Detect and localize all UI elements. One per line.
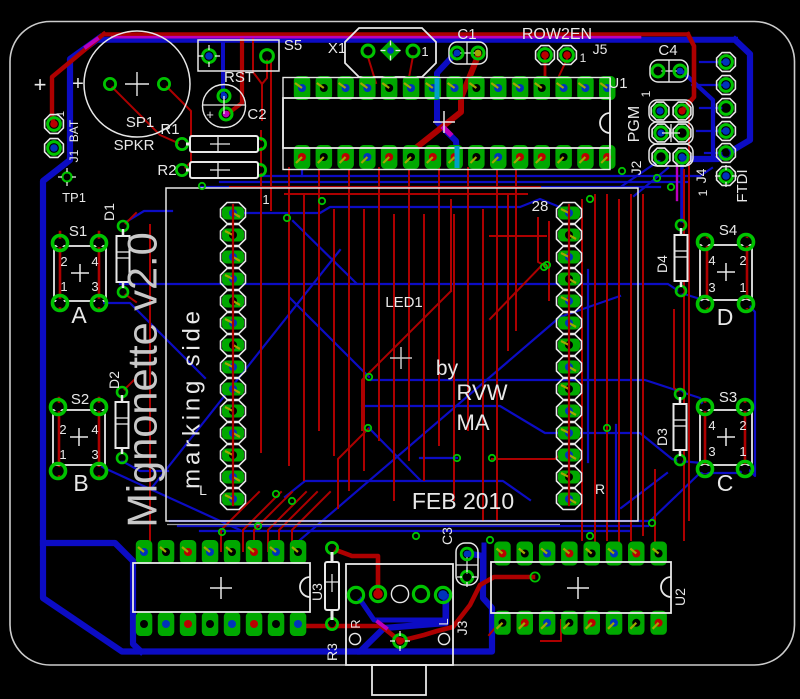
- svg-text:S2: S2: [71, 391, 89, 408]
- svg-text:BAT: BAT: [67, 119, 81, 142]
- svg-text:J1: J1: [67, 149, 81, 162]
- svg-text:C1: C1: [457, 26, 476, 43]
- svg-text:4: 4: [91, 422, 98, 437]
- svg-text:Mignonette v2.0: Mignonette v2.0: [119, 232, 166, 527]
- svg-text:U3: U3: [309, 583, 325, 601]
- svg-text:R2: R2: [157, 162, 176, 179]
- svg-text:2: 2: [59, 422, 66, 437]
- svg-text:U2: U2: [672, 588, 688, 606]
- svg-text:R: R: [348, 619, 363, 628]
- svg-text:1: 1: [739, 444, 746, 459]
- svg-text:FEB 2010: FEB 2010: [412, 488, 514, 514]
- svg-text:R1: R1: [160, 121, 179, 138]
- svg-text:C2: C2: [247, 106, 266, 123]
- svg-text:3: 3: [91, 279, 98, 294]
- svg-text:+: +: [34, 72, 47, 97]
- svg-text:by: by: [436, 357, 459, 380]
- svg-text:+: +: [206, 107, 214, 122]
- svg-text:J4: J4: [693, 168, 709, 183]
- svg-text:R: R: [595, 481, 605, 497]
- svg-text:SP1: SP1: [126, 114, 154, 131]
- svg-text:TP1: TP1: [62, 190, 86, 205]
- svg-text:D3: D3: [654, 428, 670, 446]
- svg-text:L: L: [436, 618, 451, 625]
- svg-text:D: D: [717, 304, 734, 330]
- svg-text:D4: D4: [654, 255, 670, 273]
- svg-text:1: 1: [262, 192, 269, 207]
- svg-text:4: 4: [91, 254, 98, 269]
- svg-text:1: 1: [696, 189, 710, 196]
- svg-text:2: 2: [739, 253, 746, 268]
- svg-text:C4: C4: [658, 42, 677, 59]
- svg-text:J5: J5: [593, 41, 608, 57]
- svg-text:SPKR: SPKR: [114, 137, 155, 154]
- svg-text:X1: X1: [328, 40, 346, 57]
- svg-text:S4: S4: [719, 222, 737, 239]
- svg-text:1: 1: [55, 111, 67, 117]
- svg-text:S1: S1: [69, 223, 87, 240]
- svg-text:J2: J2: [628, 160, 644, 175]
- svg-text:1: 1: [739, 280, 746, 295]
- svg-text:2: 2: [739, 418, 746, 433]
- svg-text:D1: D1: [101, 203, 117, 221]
- svg-text:1: 1: [59, 447, 66, 462]
- svg-text:ROW2EN: ROW2EN: [522, 26, 592, 43]
- svg-text:J3: J3: [454, 620, 470, 635]
- svg-text:4: 4: [708, 418, 715, 433]
- svg-text:FTDI: FTDI: [734, 169, 751, 202]
- svg-text:+: +: [72, 73, 84, 95]
- svg-text:C: C: [717, 470, 734, 496]
- svg-text:U1: U1: [608, 75, 627, 92]
- svg-text:2: 2: [60, 254, 67, 269]
- svg-text:A: A: [71, 302, 87, 328]
- svg-text:LED1: LED1: [385, 294, 423, 311]
- svg-text:1: 1: [580, 51, 587, 65]
- svg-text:C3: C3: [439, 527, 455, 545]
- svg-text:B: B: [73, 470, 88, 496]
- svg-text:28: 28: [532, 198, 549, 215]
- svg-text:RVW: RVW: [457, 380, 508, 405]
- svg-text:S3: S3: [719, 389, 737, 406]
- svg-text:3: 3: [708, 280, 715, 295]
- svg-text:S5: S5: [284, 37, 302, 54]
- svg-text:1: 1: [639, 90, 653, 97]
- svg-text:4: 4: [708, 253, 715, 268]
- svg-text:R3: R3: [324, 643, 340, 661]
- svg-text:1: 1: [60, 279, 67, 294]
- svg-text:3: 3: [708, 444, 715, 459]
- svg-text:MA: MA: [457, 410, 490, 435]
- svg-text:PGM: PGM: [626, 106, 643, 142]
- svg-text:1: 1: [421, 44, 428, 59]
- svg-text:3: 3: [91, 447, 98, 462]
- svg-text:RST: RST: [224, 69, 254, 86]
- svg-text:marking side: marking side: [179, 307, 206, 489]
